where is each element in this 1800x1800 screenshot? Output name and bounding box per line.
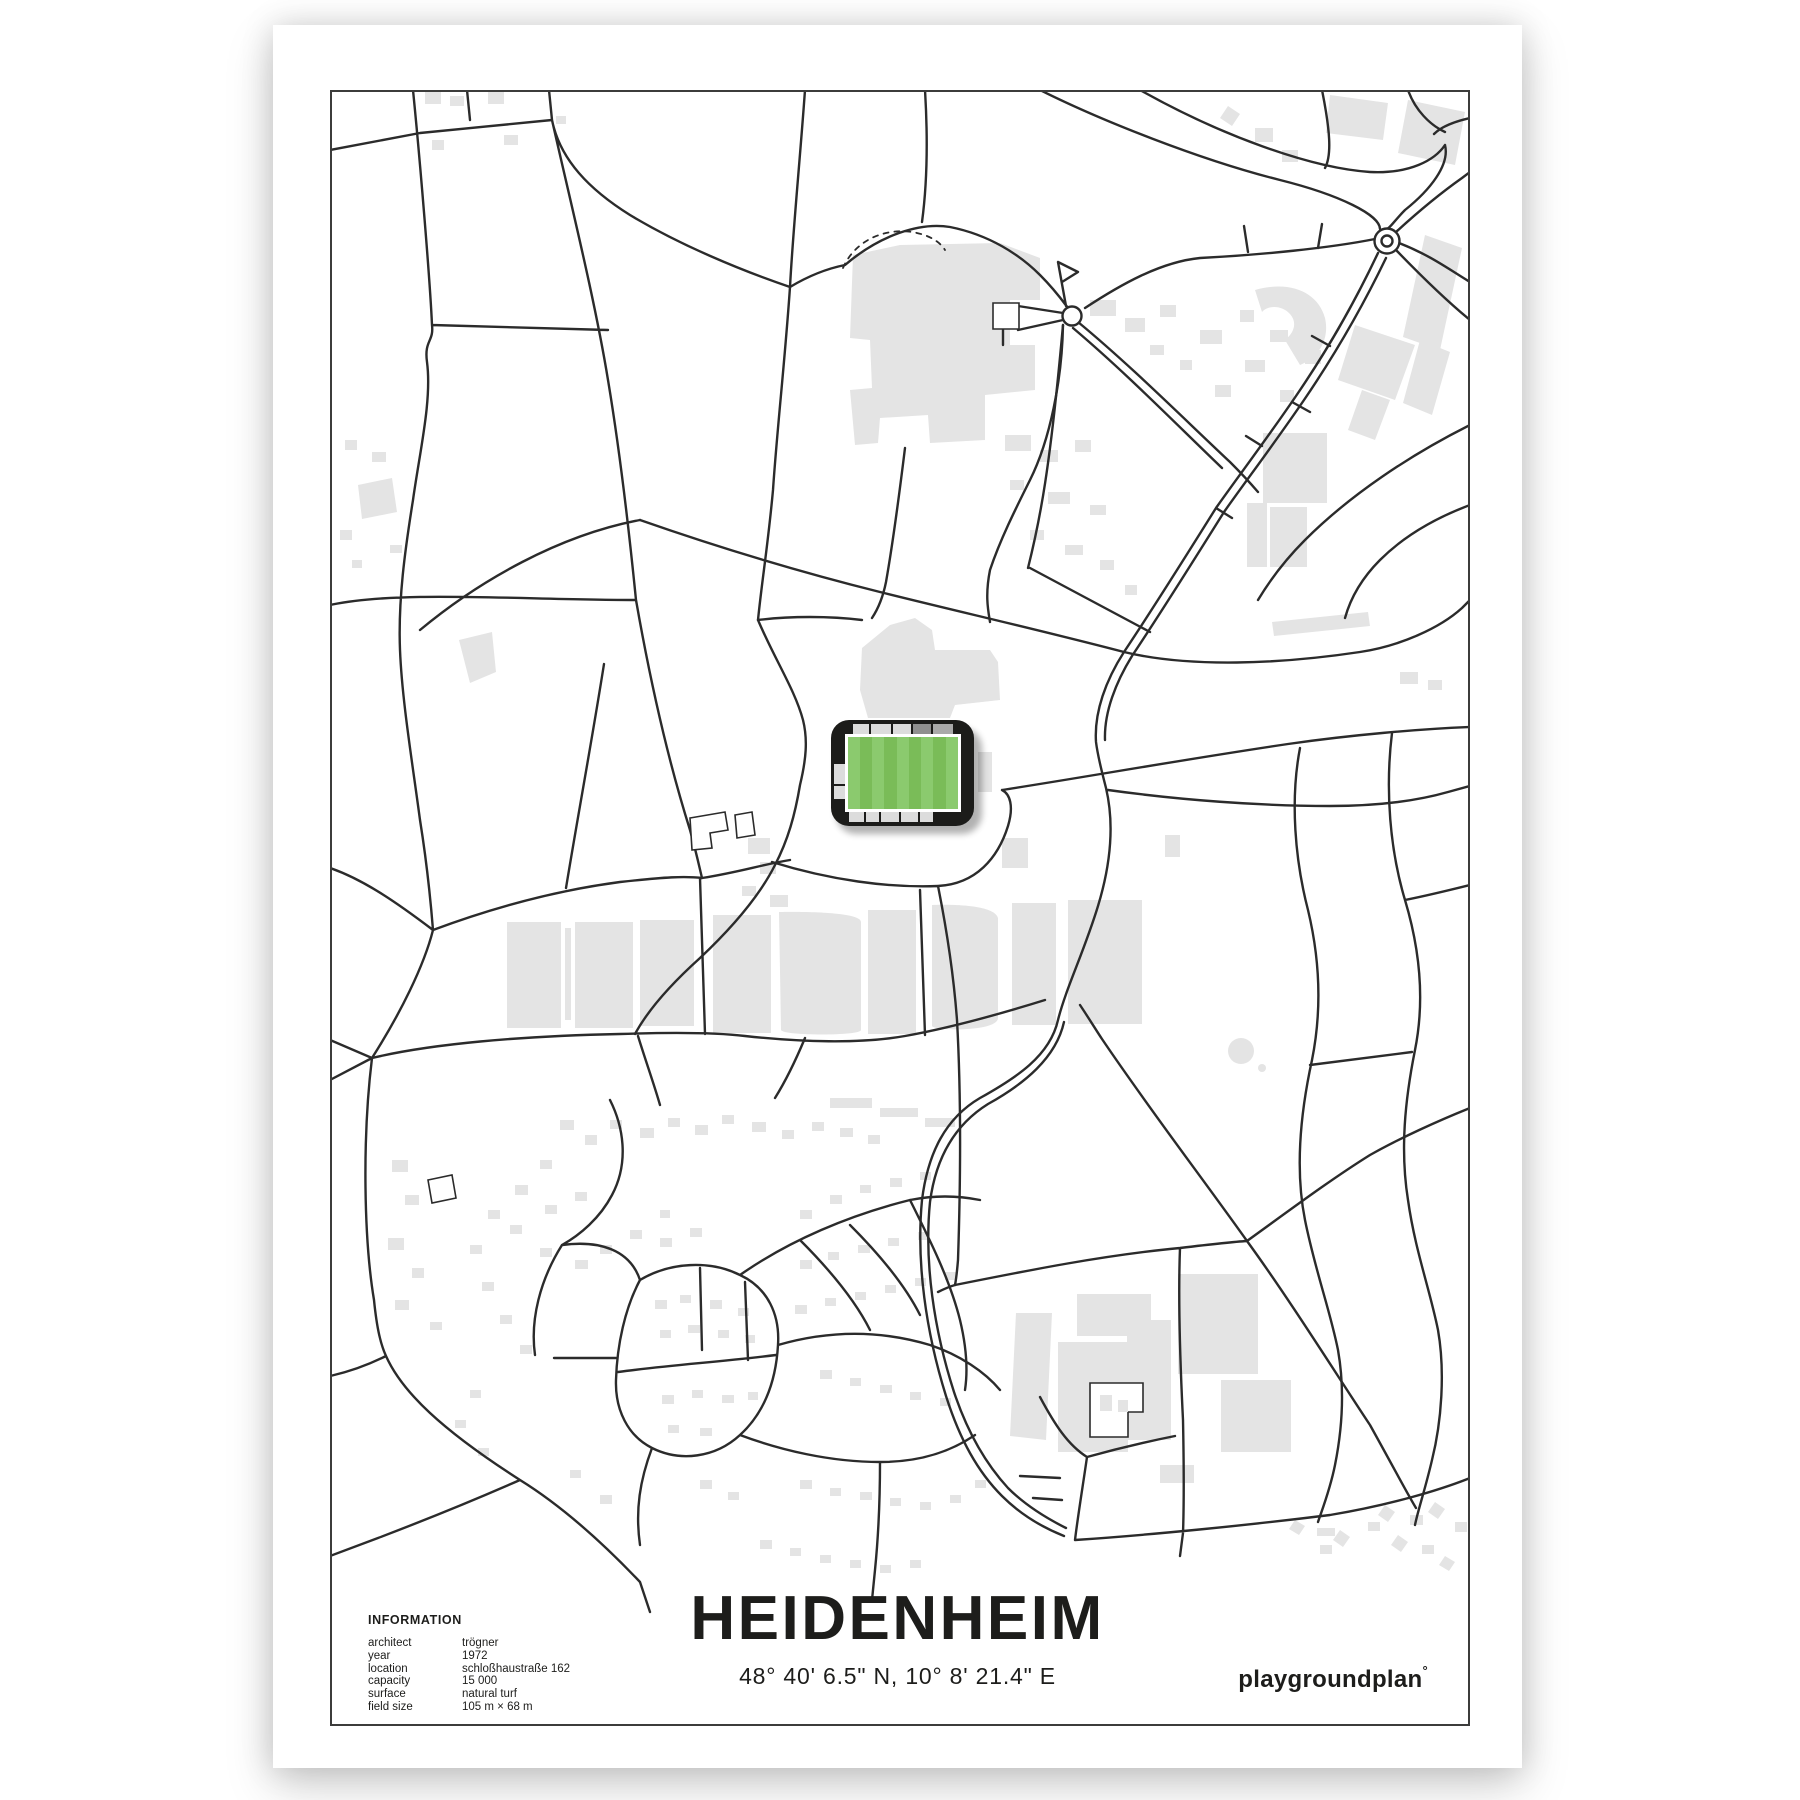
buildings-bottom-right-scatter [1289,1502,1467,1571]
outlined-building-shapes [428,303,1143,1437]
poster: INFORMATION architect trögner year 1972 … [273,25,1522,1768]
buildings-campus [850,243,1040,445]
brand-logo: playgroundplan° [1238,1663,1428,1694]
mini-roundabout-icon [1063,307,1082,326]
stadium-marker [831,720,982,834]
buildings-industrial [1010,1274,1291,1483]
roundabout-icon [1375,229,1400,254]
buildings-top-left [340,92,566,1330]
screenshot-page: INFORMATION architect trögner year 1972 … [0,0,1800,1800]
info-label: field size [368,1702,462,1713]
brand-degree-mark: ° [1423,1663,1429,1678]
outlined-buildings [428,303,1143,1437]
brand-name: playgroundplan [1238,1666,1422,1693]
pond-islet [1258,1064,1266,1072]
roads-left-lower [330,930,650,1612]
roads-right-mid [1258,425,1470,1525]
info-label: surface [368,1689,462,1700]
info-value: 105 m × 68 m [462,1702,698,1713]
poster-title: HEIDENHEIM [273,1583,1522,1654]
buildings-topright-cluster [1090,106,1326,402]
street-map [330,90,1470,1726]
roads-top-left [330,90,805,930]
info-value: natural turf [462,1689,698,1700]
buildings-band [507,900,1142,1035]
pond [1228,1038,1254,1064]
